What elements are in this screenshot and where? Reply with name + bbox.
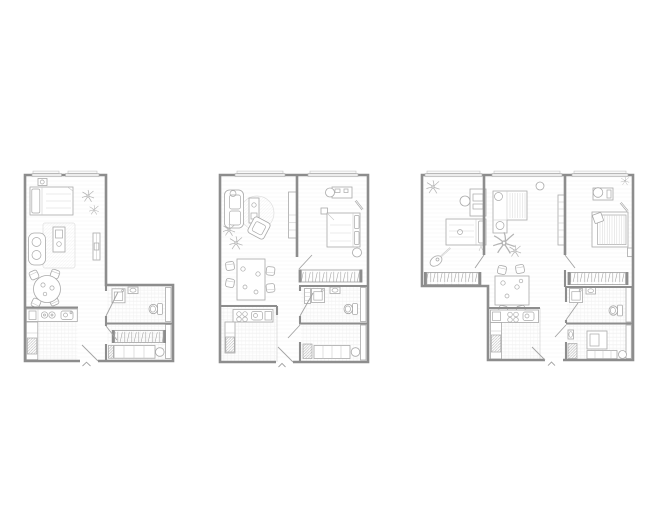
floor-plans-drawing [0, 0, 660, 530]
wash-basin [330, 287, 340, 294]
duct [166, 288, 172, 322]
duct [626, 325, 631, 359]
wardrobe-rail [301, 270, 359, 282]
clothes-rail [115, 331, 164, 343]
chair [497, 265, 507, 275]
shelf [305, 289, 311, 304]
floor-plan-studio [25, 171, 173, 366]
chair [225, 261, 234, 270]
fridge [226, 337, 235, 352]
shoe-cabinet [303, 344, 312, 359]
pouf [353, 248, 362, 257]
sofa [225, 190, 244, 228]
kitchen-counter [491, 310, 539, 323]
fridge [27, 338, 37, 354]
desk [332, 187, 352, 198]
entry-marker [548, 362, 555, 366]
chair [266, 283, 275, 292]
nightstand [38, 179, 47, 186]
dining-table [495, 276, 529, 305]
double-bed [592, 212, 628, 247]
chair [266, 266, 275, 275]
ottoman [587, 331, 607, 349]
windows [32, 171, 99, 176]
floor-plan-two-bedroom [422, 171, 633, 366]
floor-plans-canvas [0, 0, 660, 530]
shoe-cabinet [108, 346, 113, 359]
entry-marker [83, 362, 91, 366]
double-bed [327, 213, 360, 247]
kitchen-counter [26, 309, 77, 322]
washing-machine [570, 289, 583, 303]
wash-basin [586, 288, 596, 295]
shoe-cabinet [568, 344, 577, 359]
chair [515, 264, 525, 274]
duct [361, 325, 367, 360]
dining-table [237, 259, 265, 300]
entry-marker [279, 363, 286, 367]
fridge [491, 335, 501, 352]
desk-chair [460, 196, 470, 206]
kitchen-counter [233, 310, 273, 323]
basin [568, 330, 574, 339]
duct [166, 325, 172, 359]
duct [626, 288, 631, 323]
duct [361, 288, 367, 322]
single-bed [446, 219, 486, 245]
desk-chair [593, 188, 603, 198]
shelving [587, 351, 627, 359]
wash-basin [128, 287, 138, 294]
floor-plan-one-bedroom [220, 171, 368, 367]
toilet [149, 304, 162, 315]
coffee-table [53, 227, 65, 252]
windows [425, 171, 628, 176]
bed [30, 187, 73, 215]
side-table [536, 182, 544, 190]
wardrobe-rail [427, 273, 479, 285]
toilet [609, 305, 622, 316]
desk-chair [326, 188, 335, 197]
sofa [29, 233, 46, 265]
toilet [344, 304, 357, 315]
chair [225, 278, 235, 288]
nightstand [321, 208, 328, 214]
washing-machine [312, 289, 325, 303]
round-dining-table [34, 276, 61, 303]
tv-sideboard [93, 233, 100, 260]
wardrobe-rail [570, 273, 625, 285]
